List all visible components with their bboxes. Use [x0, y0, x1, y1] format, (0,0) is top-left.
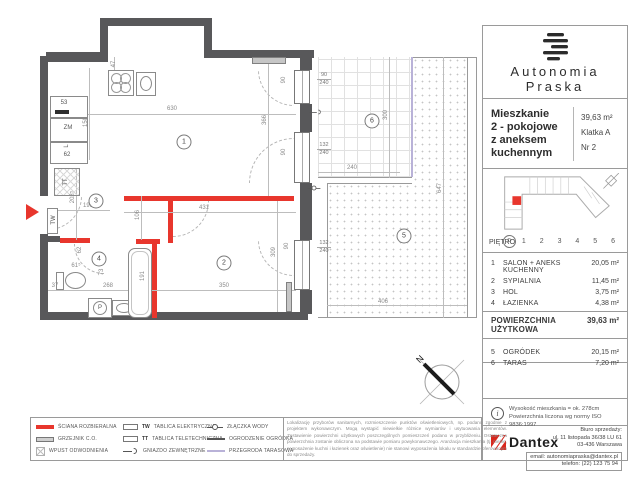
- table-row: 4ŁAZIENKA4,38 m²: [483, 298, 627, 309]
- dimension-label: 150: [83, 117, 89, 127]
- radiator: [286, 282, 292, 312]
- fixture-label-zm: ZM: [64, 125, 73, 131]
- washing-machine-drum: P: [93, 301, 107, 315]
- room-name: ŁAZIENKA: [503, 300, 595, 307]
- logo-name-line1: Autonomia: [483, 64, 627, 79]
- dimension-label: 300: [383, 110, 389, 120]
- wall: [300, 290, 312, 314]
- dimension-label: 37: [52, 283, 59, 289]
- room-area: 20,15 m²: [591, 349, 619, 356]
- room-name: SALON + ANEKS KUCHENNY: [503, 260, 591, 274]
- table-row: 3HOL3,75 m²: [483, 287, 627, 298]
- door-arc: [258, 70, 294, 106]
- panel-icon: [123, 436, 138, 442]
- legend-label: ŚCIANA ROZBIERALNA: [58, 424, 117, 430]
- fixture-label-l: L: [64, 144, 70, 147]
- room-area: 3,75 m²: [595, 289, 619, 296]
- dimension-label: 73: [99, 269, 105, 276]
- room-number-5: 5: [397, 229, 412, 244]
- legend-label: GRZEJNIK C.O.: [58, 436, 97, 442]
- removable-wall: [152, 244, 157, 318]
- socket-icon: [123, 447, 139, 455]
- dimension-label: 647: [437, 183, 443, 193]
- note-line1: Wysokość mieszkania = ok. 278cm: [509, 405, 627, 413]
- window-size-label: 132240: [314, 142, 334, 157]
- room-no: 6: [491, 360, 503, 367]
- outdoor-socket-icon: [310, 109, 323, 115]
- office-address1: ul. 11 listopada 36/38 LU 61: [526, 435, 622, 443]
- kitchen-counter-strip: [55, 110, 69, 114]
- dimension-label: 191: [140, 271, 146, 281]
- window-size-label: 132240: [314, 240, 334, 255]
- room-number-3: 3: [89, 194, 104, 209]
- legend-item: GRZEJNIK C.O.: [36, 433, 117, 445]
- legend-item: ŚCIANA ROZBIERALNA: [36, 421, 117, 433]
- table-row: 2SYPIALNIA11,45 m²: [483, 276, 627, 287]
- right-panel: Autonomia Praska Mieszkanie 2 - pokojowe…: [482, 25, 628, 461]
- drain-icon: [36, 447, 45, 456]
- apartment-area: 39,63 m²: [581, 110, 613, 125]
- legend-tag: TW: [142, 424, 150, 430]
- stove: [108, 70, 134, 96]
- room-area: 7,20 m²: [595, 360, 619, 367]
- floor-numbers[interactable]: 1 2 3 4 5 6: [522, 238, 621, 245]
- door-arc: [249, 138, 294, 183]
- room-area: 20,05 m²: [591, 260, 619, 267]
- dimension-label: 90: [281, 149, 287, 156]
- room-area: 11,45 m²: [592, 278, 619, 285]
- room-number-4: 4: [92, 252, 107, 267]
- apartment-title: Mieszkanie 2 - pokojowe z aneksem kuchen…: [491, 108, 558, 160]
- legend-item: WPUST ODWODNIENIA: [36, 445, 117, 457]
- current-floor-badge[interactable]: P: [503, 235, 516, 248]
- office-label: Biuro sprzedaży:: [526, 427, 622, 435]
- radiator: [252, 57, 286, 64]
- dimension-label: 202⁵: [70, 191, 76, 204]
- building-site-map: [489, 173, 621, 233]
- fence-icon: [207, 438, 225, 440]
- legend-label: GNIAZDO ZEWNĘTRZNE: [143, 448, 206, 454]
- logo-section: Autonomia Praska: [483, 26, 627, 99]
- apartment-info-section: Mieszkanie 2 - pokojowe z aneksem kuchen…: [483, 99, 627, 169]
- dimension-label: 47: [111, 61, 117, 68]
- removable-wall: [60, 238, 90, 243]
- room-name: OGRÓDEK: [503, 349, 591, 356]
- office-phone[interactable]: telefon: (22) 123 75 94: [530, 461, 618, 469]
- room-area: 4,38 m²: [595, 300, 619, 307]
- water-icon: [207, 423, 223, 431]
- table-row: 1SALON + ANEKS KUCHENNY20,05 m²: [483, 258, 627, 276]
- removable-wall: [124, 196, 294, 201]
- terrace-divider-line: [411, 57, 413, 177]
- compass-north-label: N: [414, 353, 426, 365]
- disclaimer: Lokalizację przyborów sanitarnych, rozmi…: [283, 418, 510, 460]
- dimension-label: 630: [167, 106, 177, 112]
- table-row: 5OGRÓDEK20,15 m²: [483, 347, 627, 358]
- apartment-number: Nr 2: [581, 140, 613, 155]
- window: [294, 240, 310, 290]
- logo-name-line2: Praska: [483, 79, 627, 94]
- window: [294, 132, 310, 183]
- fence-line: [476, 57, 477, 318]
- bathtub-inner: [131, 251, 149, 315]
- room-no: 3: [491, 289, 503, 296]
- fence-line: [467, 57, 468, 318]
- radiator-icon: [36, 437, 54, 442]
- dimension-label: 240: [347, 165, 357, 171]
- room-name: HOL: [503, 289, 595, 296]
- room-no: 5: [491, 349, 503, 356]
- dimension-label: 90: [284, 243, 290, 250]
- legend-item: PRZEGRODA TARASOWA: [207, 445, 293, 457]
- dimension-label: 309: [271, 247, 277, 257]
- room-number-2: 2: [217, 256, 232, 271]
- table-row: 6TARAS7,20 m²: [483, 358, 627, 369]
- legend-item: ZŁĄCZKA WODY: [207, 421, 293, 433]
- dimension-label: 406: [378, 299, 388, 305]
- red-wall-icon: [36, 425, 54, 429]
- wall: [46, 236, 60, 242]
- wall: [300, 183, 312, 240]
- fixture-label-53: 53: [61, 100, 68, 106]
- rooms-table-section: 1SALON + ANEKS KUCHENNY20,05 m²2SYPIALNI…: [483, 253, 627, 363]
- dimension-label: 366: [262, 115, 268, 125]
- wall: [40, 234, 48, 320]
- dimension-label: 431: [199, 205, 209, 211]
- floorplan-sheet: P N 630471503669090240300647431106202⁵19…: [0, 0, 640, 480]
- total-area-row: POWIERZCHNIA UŻYTKOWA 39,63 m²: [483, 311, 627, 339]
- legend-label: WPUST ODWODNIENIA: [49, 448, 108, 454]
- room-no: 2: [491, 278, 503, 285]
- fixture-label-tw: TW: [51, 215, 57, 224]
- room-no: 4: [491, 300, 503, 307]
- garden-area-bottom: [327, 183, 412, 317]
- dimension-label: 90: [281, 77, 287, 84]
- terrace-icon: [207, 450, 225, 452]
- terrace-edge: [318, 177, 412, 178]
- legend: ŚCIANA ROZBIERALNAGRZEJNIK C.O.WPUST ODW…: [30, 417, 482, 461]
- room-name: SYPIALNIA: [503, 278, 592, 285]
- fixture-label-62: 62: [64, 152, 71, 158]
- water-connector-icon: [308, 185, 321, 191]
- room-no: 1: [491, 260, 503, 267]
- window: [294, 70, 310, 104]
- fence-line: [327, 183, 412, 184]
- toilet-bowl: [65, 272, 86, 289]
- dimension-label: 62: [77, 247, 83, 254]
- fixture-label-tt: TT: [63, 178, 69, 185]
- kitchen-sink-bowl: [140, 76, 152, 91]
- highlighted-unit: [512, 196, 521, 205]
- wall: [46, 52, 108, 62]
- legend-tag: TT: [142, 436, 148, 442]
- panel-icon: [123, 424, 138, 430]
- floor-selector: P 1 2 3 4 5 6: [503, 235, 621, 248]
- autonomia-praska-logo-icon: [538, 32, 572, 62]
- entrance-arrow: [26, 204, 39, 220]
- wall: [40, 312, 308, 320]
- office-address2: 03-436 Warszawa: [526, 442, 622, 450]
- legend-item: OGRODZENIE OGRÓDKA: [207, 433, 293, 445]
- total-area-label: POWIERZCHNIA UŻYTKOWA: [491, 316, 587, 334]
- room-name: TARAS: [503, 360, 595, 367]
- dimension-label: 350: [219, 283, 229, 289]
- compass: N: [410, 350, 470, 410]
- legend-label: ZŁĄCZKA WODY: [227, 424, 269, 430]
- dimension-label: 61⁵: [71, 263, 80, 269]
- apartment-staircase: Klatka A: [581, 125, 613, 140]
- kitchen-cabinet: [50, 96, 88, 118]
- total-area-value: 39,63 m²: [587, 316, 619, 334]
- dimension-label: 268: [103, 283, 113, 289]
- window-size-label: 90240: [314, 72, 334, 87]
- room-number-1: 1: [177, 135, 192, 150]
- wall: [300, 54, 312, 70]
- washing-machine-label: P: [98, 305, 102, 311]
- wall: [100, 18, 212, 26]
- office-contact-box: email: autonomiapraska@dantex.pl telefon…: [526, 452, 622, 471]
- dimension-label: 106: [135, 210, 141, 220]
- room-number-6: 6: [365, 114, 380, 129]
- fence-line: [318, 317, 476, 318]
- wall: [204, 26, 212, 52]
- office-email[interactable]: email: autonomiapraska@dantex.pl: [530, 454, 618, 462]
- building-map-section: PIĘTRO P 1 2 3 4 5 6: [483, 169, 627, 253]
- wall: [40, 56, 48, 196]
